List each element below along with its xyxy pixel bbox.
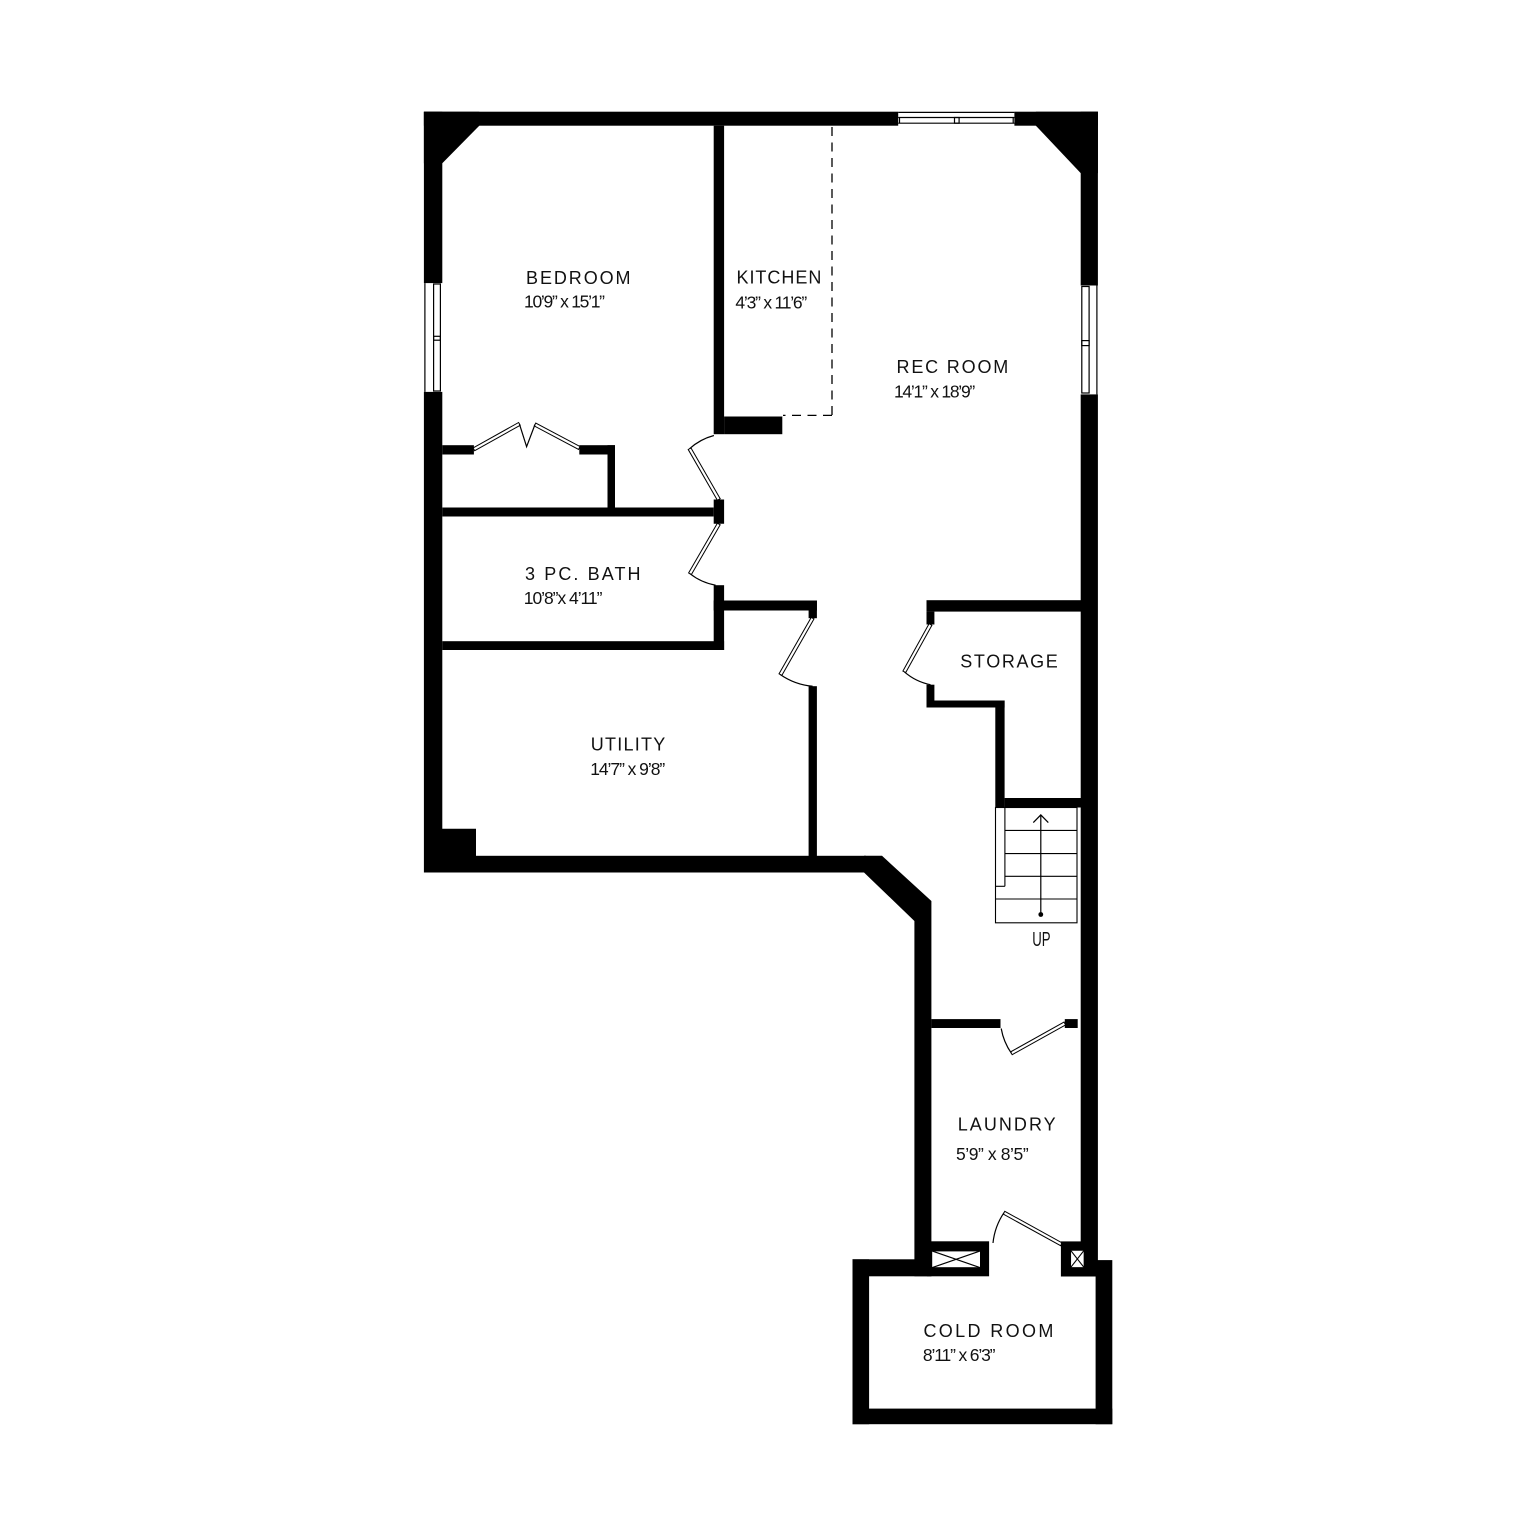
- svg-text:COLD ROOM: COLD ROOM: [923, 1321, 1055, 1341]
- svg-text:10’9” x 15’1”: 10’9” x 15’1”: [524, 292, 605, 312]
- svg-text:4’3” x 11’6”: 4’3” x 11’6”: [735, 293, 807, 313]
- svg-text:UTILITY: UTILITY: [591, 734, 668, 754]
- svg-text:14’1” x 18’9”: 14’1” x 18’9”: [894, 382, 975, 402]
- svg-text:3 PC. BATH: 3 PC. BATH: [525, 564, 643, 584]
- svg-text:REC ROOM: REC ROOM: [897, 357, 1011, 377]
- svg-text:KITCHEN: KITCHEN: [736, 268, 823, 288]
- svg-text:LAUNDRY: LAUNDRY: [958, 1115, 1058, 1135]
- svg-text:5’9” x 8’5”: 5’9” x 8’5”: [956, 1144, 1029, 1164]
- svg-text:BEDROOM: BEDROOM: [526, 268, 633, 288]
- svg-text:8’11” x 6’3”: 8’11” x 6’3”: [923, 1345, 996, 1365]
- svg-text:UP: UP: [1032, 928, 1050, 950]
- svg-text:STORAGE: STORAGE: [960, 652, 1060, 672]
- svg-text:10’8”x 4’11”: 10’8”x 4’11”: [524, 588, 603, 608]
- svg-text:14’7” x 9’8”: 14’7” x 9’8”: [590, 759, 665, 779]
